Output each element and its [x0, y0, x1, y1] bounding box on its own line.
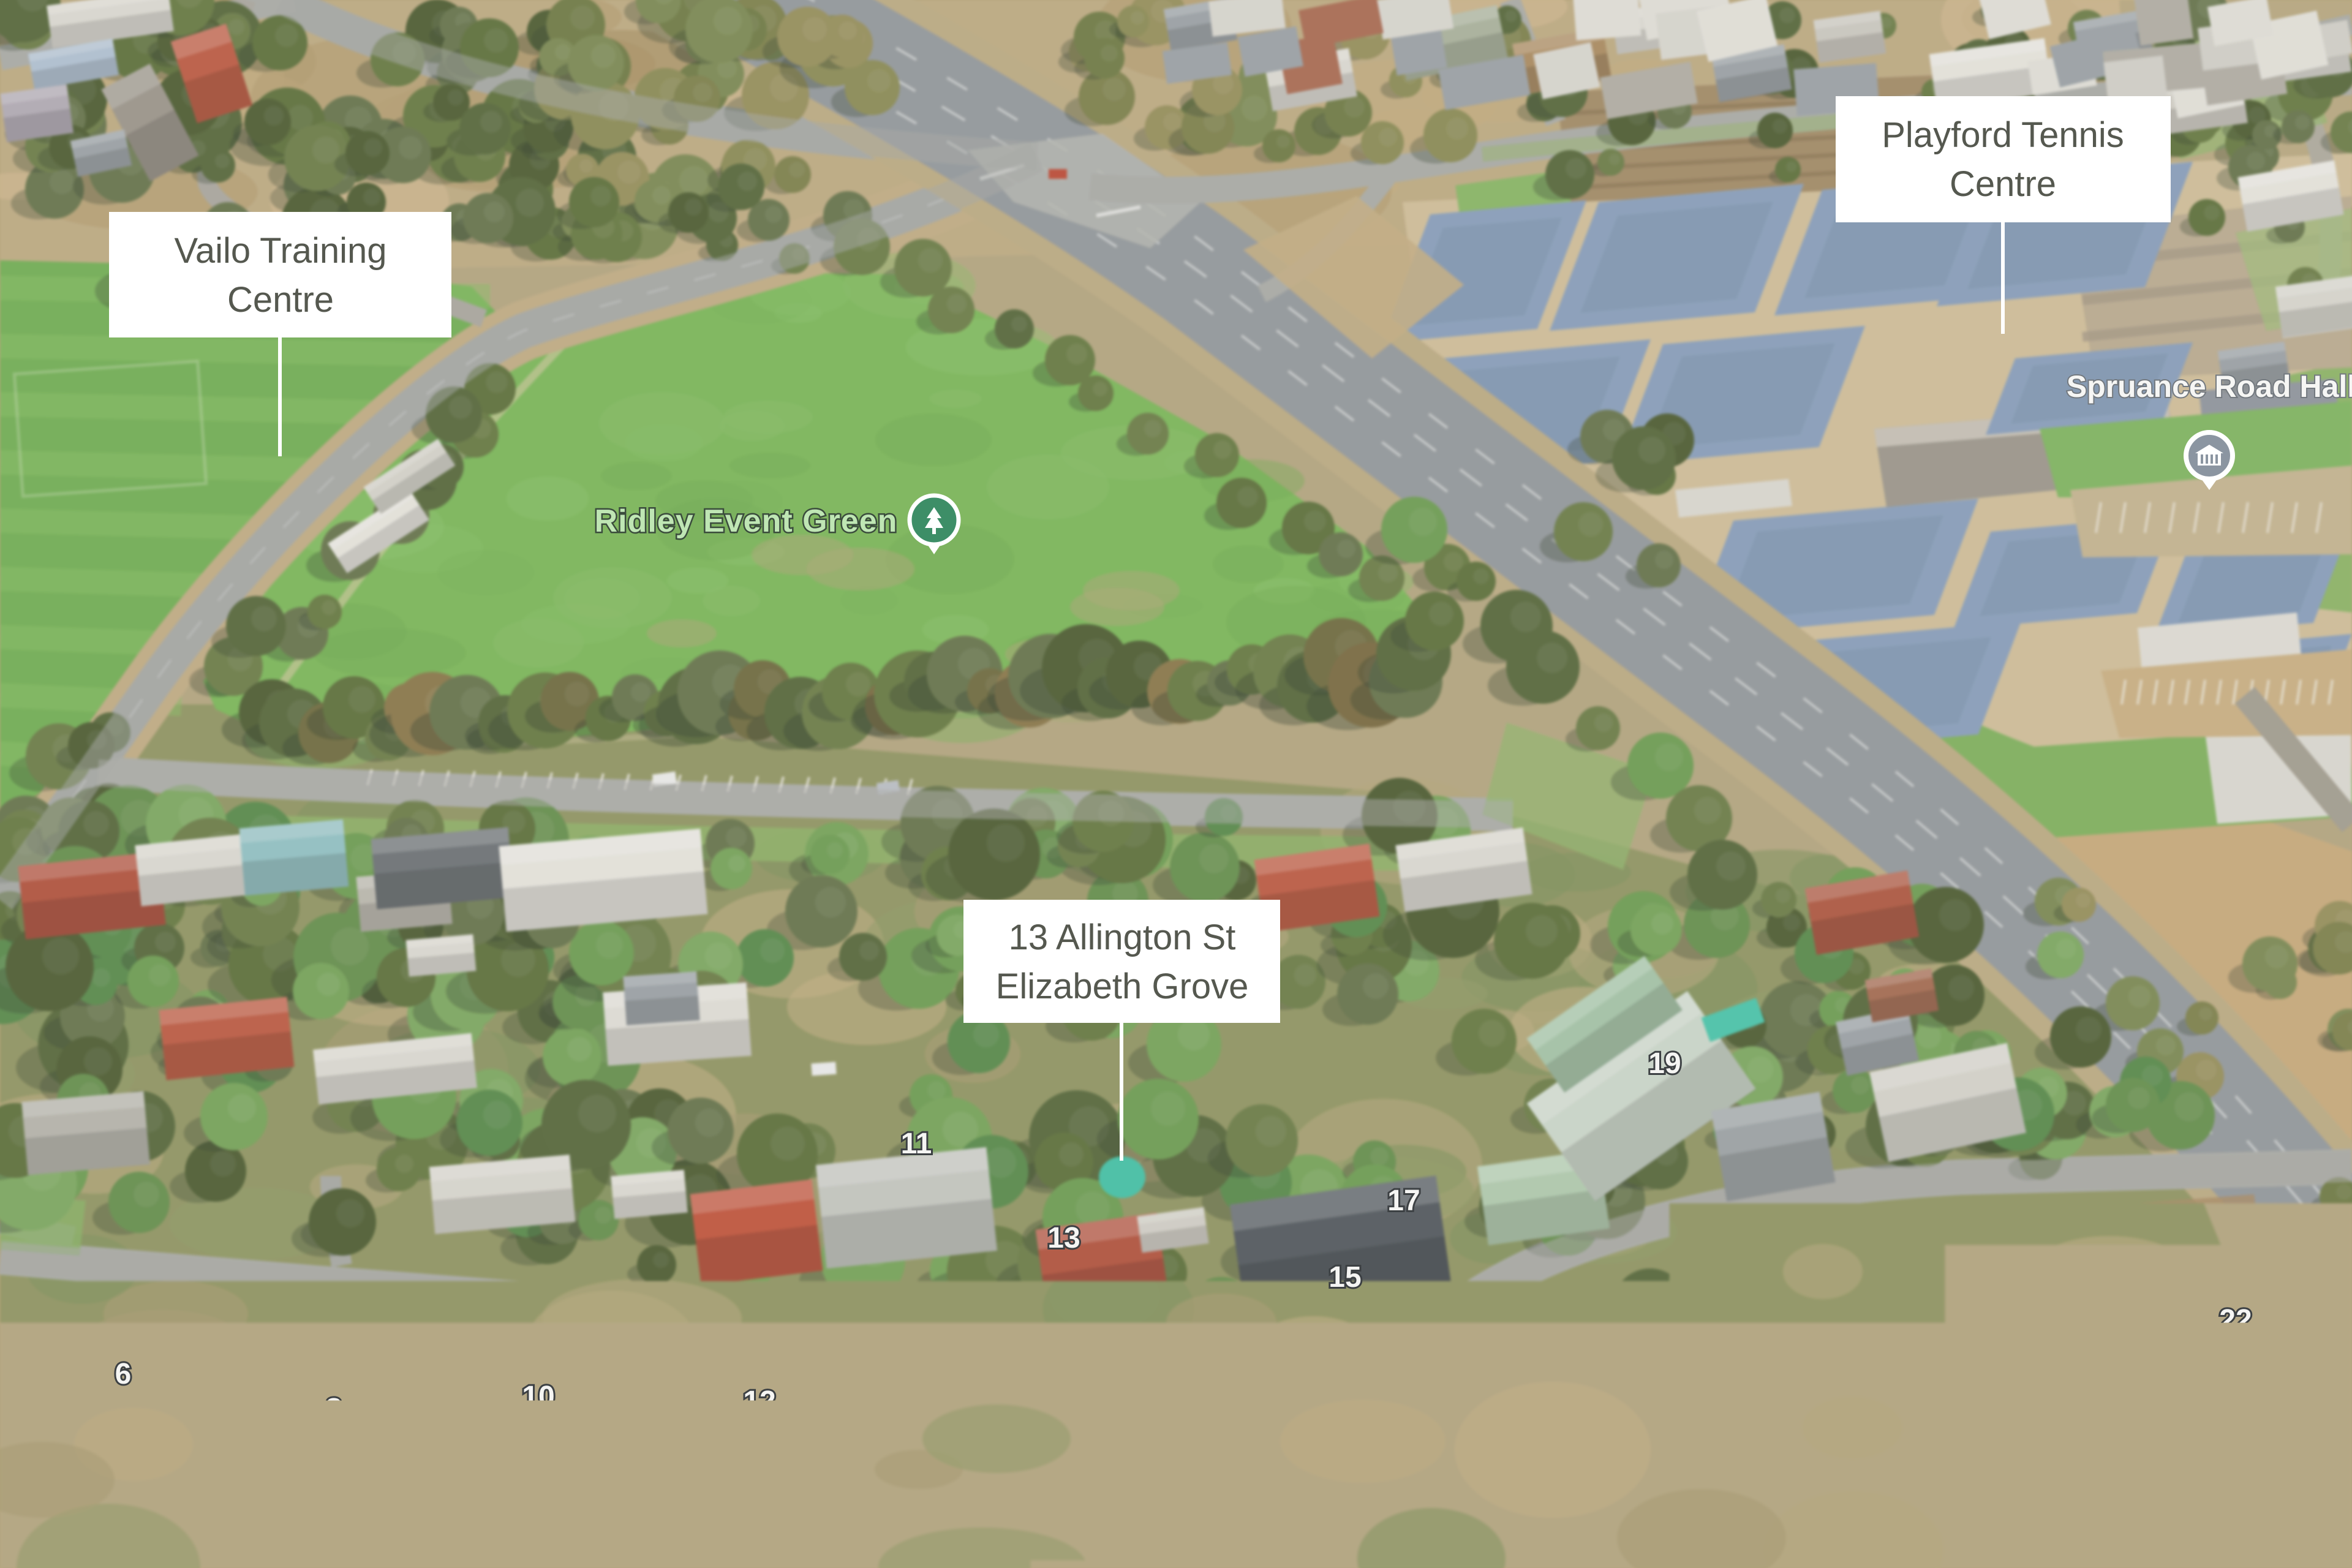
svg-text:20: 20: [1934, 1368, 1967, 1400]
svg-text:16: 16: [1120, 1509, 1152, 1542]
svg-text:Spruance Road Hall: Spruance Road Hall: [2067, 369, 2352, 404]
svg-text:Elizabeth Grove: Elizabeth Grove: [996, 967, 1249, 1006]
svg-text:Centre: Centre: [227, 280, 334, 320]
svg-text:11: 11: [901, 1128, 932, 1160]
svg-text:22: 22: [2219, 1304, 2252, 1336]
svg-text:15: 15: [1329, 1261, 1361, 1294]
svg-text:10: 10: [522, 1381, 554, 1413]
svg-text:Ridley Event Green: Ridley Event Green: [595, 503, 898, 539]
svg-text:13 Allington St: 13 Allington St: [1009, 918, 1236, 957]
svg-text:12: 12: [743, 1385, 775, 1418]
svg-text:8: 8: [326, 1393, 342, 1425]
svg-text:Vailo Training: Vailo Training: [174, 231, 386, 271]
svg-text:17: 17: [1387, 1185, 1420, 1217]
svg-text:Playford Tennis: Playford Tennis: [1882, 115, 2124, 155]
svg-text:19: 19: [1648, 1047, 1681, 1080]
svg-text:18: 18: [1739, 1371, 1771, 1403]
svg-text:13: 13: [1047, 1222, 1080, 1254]
svg-text:6: 6: [115, 1358, 132, 1390]
svg-text:Centre: Centre: [1950, 164, 2056, 204]
